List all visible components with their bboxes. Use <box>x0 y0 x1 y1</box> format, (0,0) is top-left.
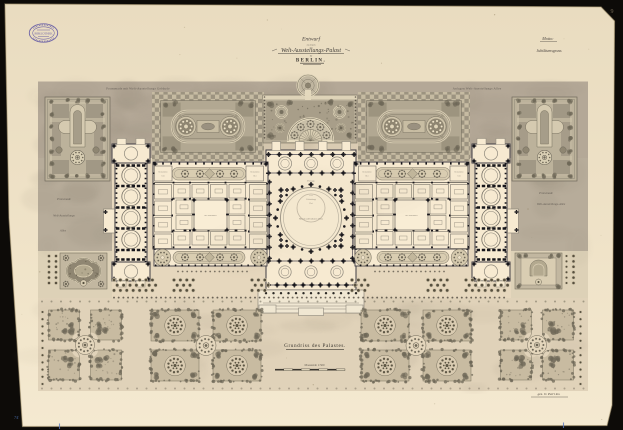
svg-text:Promenade: Promenade <box>56 197 71 201</box>
svg-text:Entwurf: Entwurf <box>301 36 321 43</box>
svg-text:Welt-Ausstellungs: Welt-Ausstellungs <box>53 214 75 218</box>
svg-text:gez. O. Petri inv.: gez. O. Petri inv. <box>538 392 561 396</box>
svg-text:der Maschinen: der Maschinen <box>204 215 216 217</box>
svg-text:Restauration: Restauration <box>454 172 463 174</box>
svg-text:Welt-Ausstellungs-Allee: Welt-Ausstellungs-Allee <box>537 202 566 206</box>
svg-text:Grundriss des Palastes.: Grundriss des Palastes. <box>284 343 346 349</box>
svg-text:Café: Café <box>457 175 461 178</box>
svg-text:Saal: Saal <box>129 228 133 230</box>
svg-text:Promenade mit Welt-Ausstellung: Promenade mit Welt-Ausstellungs Gebäude <box>106 87 170 91</box>
svg-text:Motto:: Motto: <box>541 36 554 41</box>
svg-text:Restauration: Restauration <box>250 172 259 174</box>
svg-text:Restauration: Restauration <box>158 172 167 174</box>
svg-text:Bier: Bier <box>253 176 256 178</box>
svg-text:für: für <box>310 55 313 58</box>
svg-text:Café: Café <box>161 175 165 178</box>
svg-text:Saal: Saal <box>489 186 493 188</box>
svg-text:Welt-Ausstellungs-Palast: Welt-Ausstellungs-Palast <box>281 48 341 54</box>
svg-text:Allee: Allee <box>59 229 67 233</box>
svg-text:Jubiläumsgruss: Jubiläumsgruss <box>536 48 562 53</box>
svg-text:BIBLIOTHEK: BIBLIOTHEK <box>35 32 54 36</box>
svg-text:BERLIN.: BERLIN. <box>296 59 326 64</box>
svg-text:Saal: Saal <box>129 186 133 188</box>
svg-text:Saal: Saal <box>489 228 493 230</box>
svg-text:der Maschinen: der Maschinen <box>405 215 417 217</box>
svg-text:9: 9 <box>611 9 614 15</box>
svg-text:Maassstab 1:500: Maassstab 1:500 <box>304 363 325 367</box>
svg-text:zu einem: zu einem <box>307 44 316 47</box>
svg-text:Promenade: Promenade <box>538 191 553 195</box>
svg-text:Anlagen Welt-Ausstellungs Alle: Anlagen Welt-Ausstellungs Allee <box>453 87 502 91</box>
